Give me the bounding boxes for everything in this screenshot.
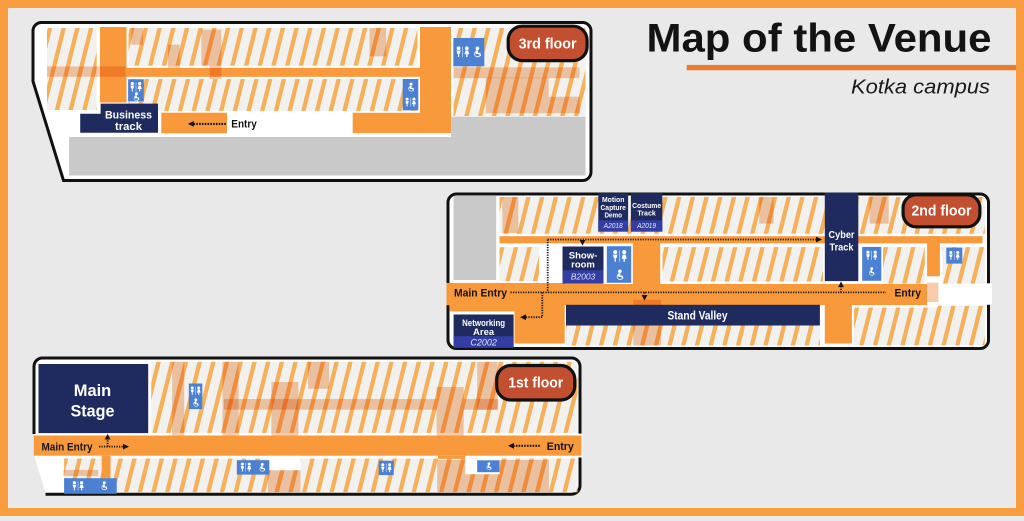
svg-text:track: track: [115, 121, 143, 133]
svg-text:Cyber: Cyber: [829, 229, 855, 241]
svg-text:room: room: [571, 260, 595, 271]
svg-text:Map of the Venue: Map of the Venue: [647, 17, 992, 61]
svg-text:Entry: Entry: [547, 441, 575, 453]
svg-text:A2019: A2019: [636, 223, 656, 230]
svg-text:2nd floor: 2nd floor: [912, 203, 972, 220]
svg-text:B2003: B2003: [571, 272, 596, 282]
svg-text:Entry: Entry: [895, 287, 922, 299]
svg-text:Track: Track: [830, 242, 854, 254]
svg-text:Stage: Stage: [71, 401, 115, 420]
svg-text:3rd floor: 3rd floor: [519, 36, 577, 53]
svg-text:Demo: Demo: [604, 212, 622, 219]
svg-text:Main Entry: Main Entry: [454, 287, 508, 299]
svg-text:1st floor: 1st floor: [508, 374, 563, 391]
svg-text:Kotka campus: Kotka campus: [851, 77, 990, 99]
svg-text:Main: Main: [74, 381, 112, 400]
svg-text:Main Entry: Main Entry: [42, 441, 94, 453]
svg-text:Track: Track: [637, 211, 656, 218]
svg-text:Costume: Costume: [632, 203, 661, 210]
svg-text:Capture: Capture: [600, 205, 626, 212]
svg-text:A2018: A2018: [603, 223, 623, 230]
svg-text:Entry: Entry: [231, 119, 257, 131]
svg-text:C2002: C2002: [470, 337, 497, 347]
svg-text:Business: Business: [105, 109, 152, 121]
svg-text:Motion: Motion: [602, 197, 625, 204]
svg-text:Stand Valley: Stand Valley: [668, 308, 728, 322]
